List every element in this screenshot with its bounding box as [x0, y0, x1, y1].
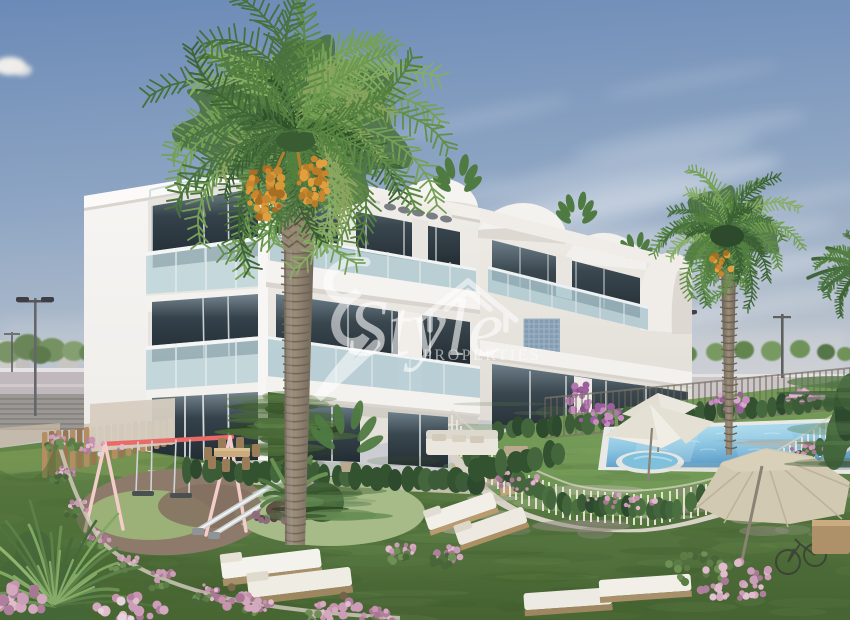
svg-text:PROPERTIES: PROPERTIES [423, 347, 541, 364]
